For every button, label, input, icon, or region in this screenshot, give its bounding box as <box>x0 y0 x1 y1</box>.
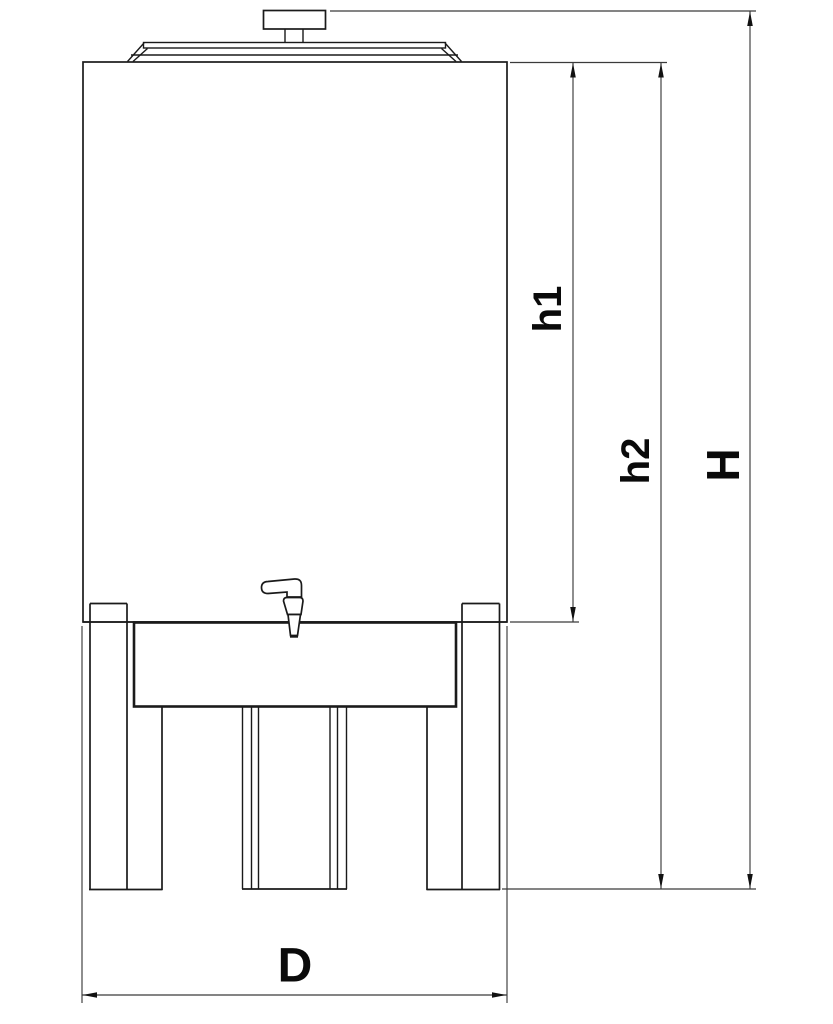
lid-knob <box>264 11 326 30</box>
spigot <box>262 579 304 637</box>
tank-lid <box>128 11 462 62</box>
tank-body <box>83 62 507 622</box>
arrow-h1-top <box>570 63 576 78</box>
tank-dimension-drawing: h1 h2 H D <box>0 0 833 1024</box>
dimension-h2-label: h2 <box>614 438 658 485</box>
dimension-labels: h1 h2 H D <box>278 286 749 993</box>
arrow-H-bottom <box>747 874 753 889</box>
tank-stand <box>89 604 500 891</box>
left-leg <box>89 604 163 891</box>
dimension-arrows <box>83 12 753 998</box>
arrow-h2-bottom <box>658 874 664 889</box>
arrow-h1-bottom <box>570 607 576 622</box>
spigot-spout <box>288 615 301 636</box>
dimension-h1-label: h1 <box>526 286 570 333</box>
arrow-D-left <box>83 992 98 998</box>
spigot-valve-body <box>284 598 304 615</box>
lid-top-plate <box>144 43 446 49</box>
dimension-H-label: H <box>697 448 749 481</box>
arrow-H-top <box>747 12 753 27</box>
tank-shell <box>83 62 507 622</box>
center-leg <box>242 708 347 890</box>
arrow-D-right <box>492 992 507 998</box>
right-leg <box>427 604 501 891</box>
drawing-canvas: h1 h2 H D <box>0 0 833 1024</box>
dimension-D-label: D <box>278 940 313 993</box>
dimension-lines <box>82 11 756 1003</box>
arrow-h2-top <box>658 63 664 78</box>
spigot-handle <box>262 579 302 597</box>
